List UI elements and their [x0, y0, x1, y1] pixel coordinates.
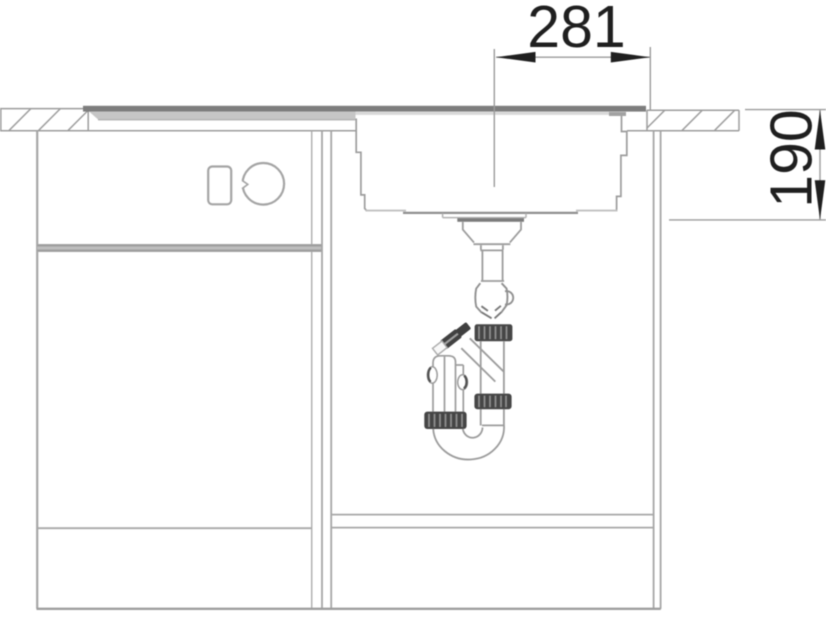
- svg-text:190: 190: [759, 109, 825, 207]
- svg-text:281: 281: [527, 0, 625, 60]
